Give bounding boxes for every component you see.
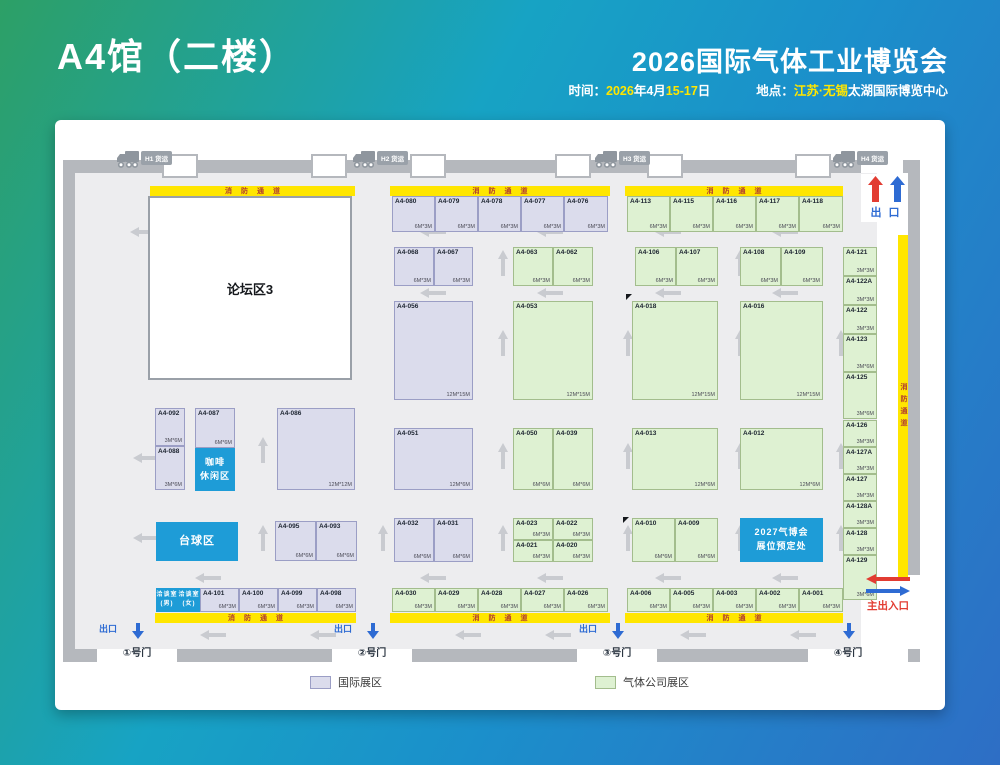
fire-lane: 消防通道 — [155, 613, 356, 623]
flow-arrow — [250, 442, 276, 460]
booth-A4-098: A4-0986M*3M — [317, 588, 356, 612]
booth-A4-030: A4-0306M*3M — [392, 588, 435, 612]
flow-arrow — [370, 530, 396, 548]
flow-arrow — [200, 627, 226, 645]
truck-H1 货运: H1 货运 — [117, 150, 172, 176]
billiards-area: 台球区 — [156, 522, 238, 561]
booth-A4-010: A4-0106M*6M — [632, 518, 675, 562]
truck-icon — [353, 150, 375, 168]
booth-A4-020: A4-0206M*3M — [553, 540, 593, 562]
booth-A4-108: A4-1086M*3M — [740, 247, 781, 286]
top-exit-label: 出 口 — [863, 204, 909, 220]
booth-A4-077: A4-0776M*3M — [521, 196, 564, 232]
truck-H4 货运: H4 货运 — [833, 150, 888, 176]
meeting-room-male: 洽谈室(男) — [156, 588, 178, 612]
2027-booth-reservation: 2027气博会展位预定处 — [740, 518, 823, 562]
truck-H2 货运: H2 货运 — [353, 150, 408, 176]
booth-A4-018: A4-01812M*15M — [632, 301, 718, 400]
booth-A4-003: A4-0036M*3M — [713, 588, 756, 612]
booth-A4-092: A4-0923M*6M — [155, 408, 185, 446]
blue-right-arrow-icon — [866, 586, 910, 596]
booth-A4-127A: A4-127A3M*3M — [843, 447, 877, 474]
legend-international: 国际展区 — [310, 674, 382, 690]
hall-title: A4馆（二楼） — [57, 28, 297, 80]
expo-location: 地点：江苏·无锡太湖国际博览中心 — [756, 80, 948, 99]
booth-A4-021: A4-0216M*3M — [513, 540, 553, 562]
booth-A4-005: A4-0056M*3M — [670, 588, 713, 612]
truck-H3 货运: H3 货运 — [595, 150, 650, 176]
booth-A4-128A: A4-128A3M*3M — [843, 501, 877, 528]
booth-A4-068: A4-0686M*3M — [394, 247, 434, 286]
booth-A4-022: A4-0226M*3M — [553, 518, 593, 540]
flow-arrow — [772, 570, 798, 588]
booth-A4-107: A4-1076M*3M — [676, 247, 718, 286]
booth-A4-026: A4-0266M*3M — [564, 588, 608, 612]
expo-floorplan-poster: A4馆（二楼） 2026国际气体工业博览会 时间：2026年4月15-17日 地… — [0, 0, 1000, 765]
booth-A4-029: A4-0296M*3M — [435, 588, 478, 612]
coffee-lounge: 咖啡休闲区 — [195, 448, 235, 491]
booth-A4-115: A4-1156M*3M — [670, 196, 713, 232]
booth-A4-002: A4-0026M*3M — [756, 588, 799, 612]
gas-swatch — [595, 676, 616, 689]
meeting-room-female: 洽谈室(女) — [178, 588, 200, 612]
booth-A4-050: A4-0506M*6M — [513, 428, 553, 490]
main-entrance: 主出入口 — [861, 572, 915, 613]
booth-A4-122: A4-1223M*3M — [843, 305, 877, 334]
expo-meta: 时间：2026年4月15-17日 地点：江苏·无锡太湖国际博览中心 — [569, 80, 948, 99]
booth-A4-086: A4-08612M*12M — [277, 408, 355, 490]
booth-A4-080: A4-0806M*3M — [392, 196, 435, 232]
booth-A4-063: A4-0636M*3M — [513, 247, 553, 286]
booth-A4-123: A4-1233M*6M — [843, 334, 877, 372]
flow-arrow — [545, 627, 571, 645]
booth-A4-099: A4-0996M*3M — [278, 588, 317, 612]
booth-A4-122A: A4-122A3M*3M — [843, 276, 877, 305]
legend-gas-label: 气体公司展区 — [623, 674, 689, 690]
exit-arrows — [863, 176, 909, 202]
booth-A4-121: A4-1213M*3M — [843, 247, 877, 276]
gate-③号门: 出口③号门 — [577, 620, 657, 660]
flow-arrow — [680, 627, 706, 645]
booth-A4-012: A4-01212M*6M — [740, 428, 823, 490]
booth-A4-006: A4-0066M*3M — [627, 588, 670, 612]
booth-A4-088: A4-0883M*6M — [155, 446, 185, 490]
door-mark — [623, 517, 629, 523]
booth-A4-056: A4-05612M*15M — [394, 301, 473, 400]
expo-title: 2026国际气体工业博览会 — [632, 40, 948, 79]
booth-A4-078: A4-0786M*3M — [478, 196, 521, 232]
booth-A4-062: A4-0626M*3M — [553, 247, 593, 286]
forum-area-3: 论坛区3 — [148, 196, 352, 380]
booth-A4-118: A4-1186M*3M — [799, 196, 843, 232]
booth-A4-093: A4-0936M*6M — [316, 521, 357, 561]
fire-lane: 消防通道 — [625, 186, 843, 196]
booth-A4-051: A4-05112M*6M — [394, 428, 473, 490]
flow-arrow — [537, 570, 563, 588]
booth-A4-126: A4-1263M*3M — [843, 420, 877, 447]
flow-arrow — [250, 530, 276, 548]
truck-icon — [117, 150, 139, 168]
floorplan-panel: 消防通道消防通道消防通道消防通道消防通道消防通道A4-0806M*3MA4-07… — [55, 120, 945, 710]
booth-A4-027: A4-0276M*3M — [521, 588, 564, 612]
booth-A4-053: A4-05312M*15M — [513, 301, 593, 400]
booth-A4-117: A4-1176M*3M — [756, 196, 799, 232]
gate-down-arrow-icon — [367, 623, 379, 639]
gate-④号门: ④号门 — [808, 620, 888, 660]
booth-A4-013: A4-01312M*6M — [632, 428, 718, 490]
booth-A4-009: A4-0096M*6M — [675, 518, 718, 562]
fire-lane: 消防通道 — [150, 186, 355, 196]
booth-A4-100: A4-1006M*3M — [239, 588, 278, 612]
booth-A4-032: A4-0326M*6M — [394, 518, 434, 562]
booth-A4-067: A4-0676M*3M — [434, 247, 473, 286]
booth-A4-113: A4-1136M*3M — [627, 196, 670, 232]
flow-arrow — [420, 570, 446, 588]
booth-A4-076: A4-0766M*3M — [564, 196, 608, 232]
legend-gas-company: 气体公司展区 — [595, 674, 689, 690]
booth-A4-127: A4-1273M*3M — [843, 474, 877, 501]
fire-lane-vertical: 消防通道 — [898, 235, 908, 578]
booth-A4-128: A4-1283M*3M — [843, 528, 877, 555]
booth-A4-023: A4-0236M*3M — [513, 518, 553, 540]
main-entrance-label: 主出入口 — [861, 598, 915, 613]
booth-A4-101: A4-1016M*3M — [200, 588, 239, 612]
expo-time: 时间：2026年4月15-17日 — [569, 80, 711, 99]
booth-A4-079: A4-0796M*3M — [435, 196, 478, 232]
gate-down-arrow-icon — [612, 623, 624, 639]
legend-intl-label: 国际展区 — [338, 674, 382, 690]
gate-①号门: 出口①号门 — [97, 620, 177, 660]
red-left-arrow-icon — [866, 574, 910, 584]
truck-icon — [833, 150, 855, 168]
gate-down-arrow-icon — [132, 623, 144, 639]
booth-A4-125: A4-1253M*6M — [843, 372, 877, 419]
booth-A4-016: A4-01612M*15M — [740, 301, 823, 400]
red-up-arrow-icon — [868, 176, 883, 202]
booth-A4-106: A4-1066M*3M — [635, 247, 676, 286]
blue-up-arrow-icon — [890, 176, 905, 202]
booth-A4-031: A4-0316M*6M — [434, 518, 473, 562]
gate-②号门: 出口②号门 — [332, 620, 412, 660]
booth-A4-116: A4-1166M*3M — [713, 196, 756, 232]
intl-swatch — [310, 676, 331, 689]
top-exit: 出 口 — [863, 176, 909, 220]
booth-A4-095: A4-0956M*6M — [275, 521, 316, 561]
booth-A4-039: A4-0396M*6M — [553, 428, 593, 490]
booth-A4-001: A4-0016M*3M — [799, 588, 843, 612]
fire-lane: 消防通道 — [390, 186, 610, 196]
flow-arrow — [655, 570, 681, 588]
booth-A4-087: A4-0876M*6M — [195, 408, 235, 448]
truck-icon — [595, 150, 617, 168]
flow-arrow — [195, 570, 221, 588]
booth-A4-109: A4-1096M*3M — [781, 247, 823, 286]
flow-arrow — [455, 627, 481, 645]
gate-down-arrow-icon — [843, 623, 855, 639]
door-mark — [626, 294, 632, 300]
booth-A4-028: A4-0286M*3M — [478, 588, 521, 612]
